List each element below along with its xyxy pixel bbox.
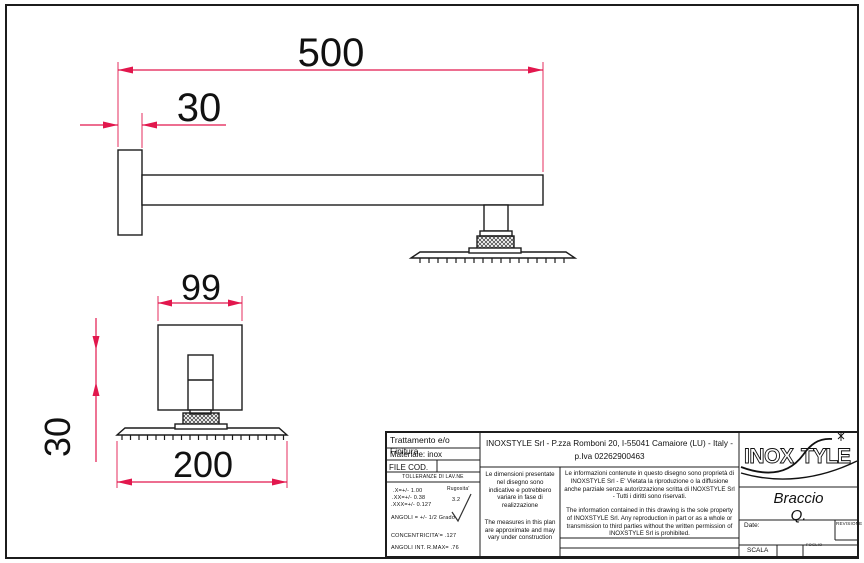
tolerance-internal-angles: ANGOLI INT. R.MAX= .76 [391, 545, 459, 552]
arm-tube-front [188, 355, 213, 410]
roughness-label: Rugosita' [447, 486, 470, 492]
file-code-label: FILE COD. [389, 463, 435, 473]
dim-plate-width: 99 [181, 267, 221, 308]
legal-notice-it: Le informazioni contenute in questo dise… [563, 470, 736, 501]
sheet-label: FOGLIO [806, 542, 822, 547]
head-collar-side [469, 248, 521, 253]
dimension-note-en: The measures in this plan are approximat… [483, 519, 557, 542]
nozzle-ticks-side [420, 258, 564, 263]
dim-arm-square: 30 [37, 417, 78, 457]
dimension-note: Le dimensioni presentate nel disegno son… [483, 471, 557, 542]
wall-plate-side [118, 150, 142, 235]
knurled-nut-side [477, 236, 514, 249]
legal-notice-en: The information contained in this drawin… [563, 507, 736, 538]
arm-connector-side [484, 205, 508, 231]
dimension-lines [80, 62, 543, 488]
front-view [117, 325, 287, 440]
dim-head-width: 200 [173, 444, 233, 485]
company-header: INOXSTYLE Srl - P.zza Romboni 20, I-5504… [483, 437, 736, 463]
material-value: Materiale: inox [390, 450, 478, 460]
tolerance-x: .X=+/- 1.00 [393, 488, 422, 495]
legal-notice: Le informazioni contenute in questo dise… [563, 470, 736, 538]
date-label: Date: [744, 522, 760, 530]
inoxstyle-logo: INOX TYLE [741, 431, 857, 479]
scale-label: SCALA [747, 547, 768, 555]
company-vat: p.Iva 02262900463 [483, 450, 736, 463]
roughness-value: 3.2 [452, 497, 460, 504]
dim-arm-length: 500 [298, 31, 365, 75]
shower-arm-side [142, 175, 543, 205]
tolerance-xx: .XX=+/- 0.38 [392, 495, 425, 502]
tolerance-angles: ANGOLI = +/- 1/2 Grado [391, 515, 455, 522]
dimension-note-it: Le dimensioni presentate nel disegno son… [483, 471, 557, 510]
tolerance-xxx: .XXX=+/- 0.127 [391, 502, 431, 509]
side-view [118, 150, 575, 263]
company-address: INOXSTYLE Srl - P.zza Romboni 20, I-5504… [483, 437, 736, 450]
drawing-sheet: 500 30 99 30 200 [0, 0, 864, 563]
head-collar-front [175, 424, 227, 429]
tolerance-concentricity: CONCENTRICITA'= .127 [391, 533, 456, 540]
product-title: Braccio Q. [739, 490, 858, 525]
product-name: Braccio [739, 490, 858, 507]
dim-plate-depth: 30 [177, 86, 222, 130]
tolerance-header: TOLLERANZE DI LAV.NE [386, 474, 480, 480]
revision-label: REVISIONE [836, 521, 862, 527]
nozzle-ticks-front [122, 435, 284, 440]
logo-text-inox: INOX [744, 445, 794, 468]
connector-flange-side [480, 231, 512, 236]
